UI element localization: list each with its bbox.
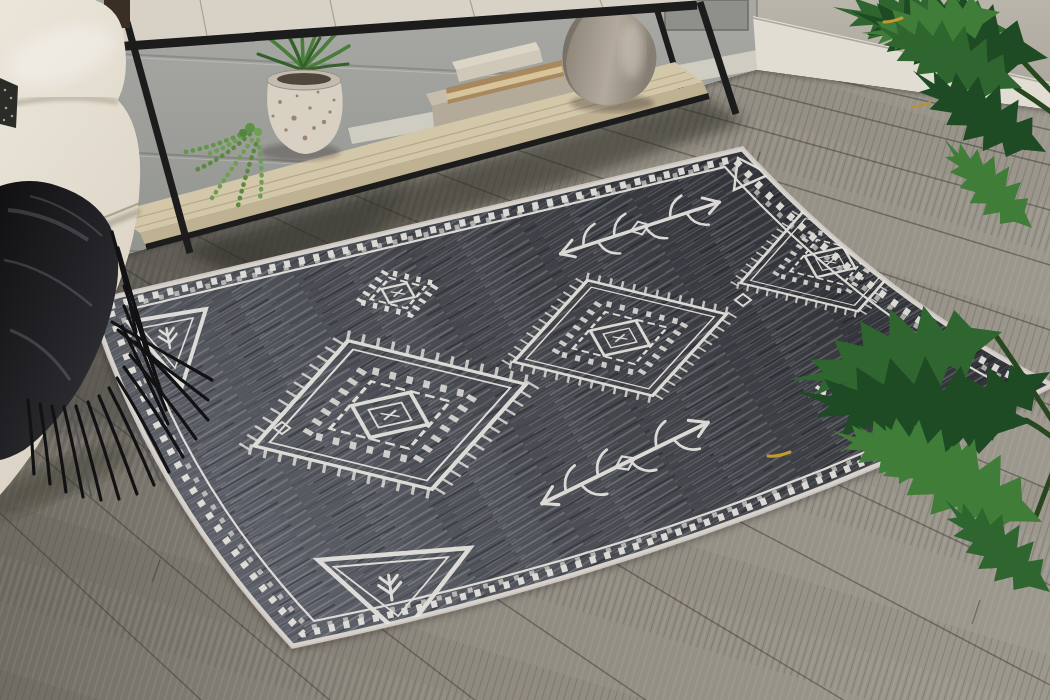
- scene-canvas: [0, 0, 1050, 700]
- pot-opening: [277, 73, 331, 85]
- living-room-photo: [0, 0, 1050, 700]
- vase-highlight: [620, 22, 644, 78]
- accent-pillow: [0, 78, 18, 128]
